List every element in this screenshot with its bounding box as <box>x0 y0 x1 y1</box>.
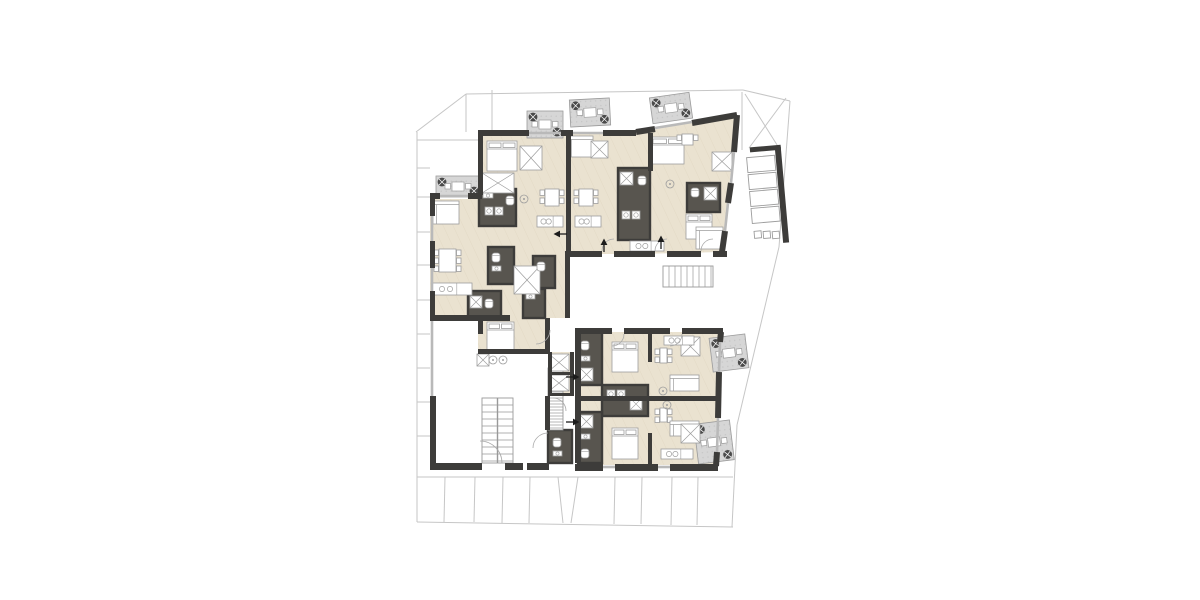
wall <box>648 133 653 171</box>
chair <box>655 409 660 415</box>
furniture-lamp <box>489 356 497 364</box>
storage-stall <box>751 206 780 223</box>
storage-strip <box>746 145 789 246</box>
site-line <box>558 477 563 523</box>
balcony-chair <box>532 122 538 128</box>
furniture-wc <box>691 188 699 197</box>
site-line <box>474 477 475 522</box>
wall <box>575 464 603 471</box>
pillow <box>626 344 636 349</box>
toilet <box>553 438 561 447</box>
wall <box>548 393 574 396</box>
wall <box>670 464 718 471</box>
balcony <box>709 334 749 372</box>
site-line <box>743 90 790 101</box>
table <box>579 189 593 206</box>
wall <box>636 129 655 132</box>
chair <box>655 349 660 355</box>
wall <box>728 183 731 203</box>
chair <box>655 357 660 363</box>
toilet <box>691 188 699 197</box>
toilet <box>581 341 589 350</box>
chair <box>540 190 545 196</box>
toilet <box>638 176 646 185</box>
wall <box>430 199 435 216</box>
chair <box>560 190 565 196</box>
furniture-sink <box>553 451 562 456</box>
balcony-table <box>539 120 551 129</box>
wall <box>614 251 655 257</box>
wall <box>716 452 717 466</box>
balcony-chair <box>701 440 707 446</box>
table <box>545 189 559 206</box>
sofa <box>670 375 699 391</box>
furniture-shower <box>704 187 717 200</box>
wall <box>575 396 721 401</box>
site-line <box>749 98 786 148</box>
toilet <box>581 449 589 458</box>
chair <box>594 190 599 196</box>
wall <box>682 328 723 334</box>
wall <box>527 463 549 470</box>
furniture-sofa <box>433 201 459 224</box>
furniture-sink <box>581 434 590 439</box>
kitchen-counter <box>664 336 694 345</box>
balcony-chair <box>678 103 684 109</box>
balcony-chair <box>553 122 559 128</box>
furniture-sink <box>492 266 501 271</box>
wall <box>565 251 602 257</box>
kitchen-counter <box>661 449 693 459</box>
balcony-chair <box>577 110 583 116</box>
pillow <box>688 216 698 221</box>
furniture-sink <box>581 356 590 361</box>
wall <box>478 130 529 136</box>
site-line <box>417 522 733 527</box>
site-line <box>416 94 466 132</box>
site-line <box>671 477 672 525</box>
furniture-shower <box>477 354 489 366</box>
furniture-bed <box>651 137 684 164</box>
chair <box>668 409 673 415</box>
chair <box>574 190 579 196</box>
storage-stall <box>750 189 779 206</box>
toilet <box>537 262 545 271</box>
pillow <box>626 430 636 435</box>
table <box>682 134 693 145</box>
pillow <box>700 216 710 221</box>
chair <box>540 198 545 204</box>
wall <box>648 433 652 464</box>
chair <box>457 266 462 272</box>
wall <box>615 464 658 471</box>
storage-bin <box>772 231 780 239</box>
wall <box>718 372 719 418</box>
wall <box>624 328 670 334</box>
bathroom-core <box>488 247 514 284</box>
balcony-chair <box>466 184 472 190</box>
furniture-wardrobe <box>514 266 540 294</box>
table <box>660 408 667 422</box>
pillow <box>503 143 515 148</box>
furniture-sofa <box>670 375 699 391</box>
furniture-wc <box>638 176 646 185</box>
pillow <box>502 324 513 329</box>
wall <box>478 320 483 334</box>
chair <box>594 198 599 204</box>
furniture-wardrobe <box>712 152 732 171</box>
furniture-kitchen <box>661 449 693 459</box>
wall <box>720 332 721 342</box>
storage-stall <box>748 172 777 189</box>
site-line <box>697 477 698 525</box>
furniture-shower <box>470 296 482 308</box>
pillow <box>614 344 624 349</box>
furniture-shower <box>580 415 593 428</box>
balcony-chair <box>658 106 664 112</box>
site-line <box>745 94 779 148</box>
staircase <box>663 266 713 287</box>
furniture-lamp <box>499 356 507 364</box>
furniture-shower <box>620 172 633 185</box>
washer <box>622 211 630 219</box>
storage-stall <box>747 155 776 172</box>
washer <box>485 207 493 215</box>
furniture-wc <box>537 262 545 271</box>
site-line <box>732 425 737 527</box>
pillow <box>489 324 500 329</box>
pillow <box>614 430 624 435</box>
wall <box>478 349 550 354</box>
furniture-bed <box>612 342 638 372</box>
furniture-wardrobe <box>482 173 514 193</box>
furniture-kitchen <box>664 336 694 345</box>
wall <box>575 334 581 396</box>
chair <box>668 349 673 355</box>
furniture-bed <box>612 428 638 459</box>
balcony-table <box>452 182 464 191</box>
staircase <box>482 398 513 463</box>
furniture-sofa <box>696 227 723 249</box>
furniture-kitchen <box>537 216 563 227</box>
balcony-chair <box>445 184 451 190</box>
wall <box>548 372 574 375</box>
toilet <box>506 196 514 205</box>
site-line <box>502 477 503 523</box>
wall <box>565 254 570 318</box>
balcony-chair <box>721 437 727 443</box>
pillow <box>653 139 667 144</box>
wall <box>603 130 636 136</box>
chair <box>457 258 462 264</box>
wall <box>575 401 581 463</box>
wall <box>734 115 737 152</box>
wall <box>430 315 510 321</box>
chair <box>457 250 462 256</box>
wall <box>545 318 550 354</box>
chair <box>560 198 565 204</box>
floor-plan-drawing <box>0 0 1200 600</box>
window <box>719 342 720 372</box>
wall <box>575 328 612 334</box>
floor-plan-page <box>0 0 1200 600</box>
balcony-chair <box>597 109 603 115</box>
site-line <box>641 477 642 524</box>
toilet <box>485 299 493 308</box>
table <box>660 348 667 363</box>
kitchen-counter <box>432 283 472 295</box>
furniture-washer <box>622 211 630 219</box>
furniture-kitchen <box>575 216 601 227</box>
furniture-sink <box>483 193 493 198</box>
furniture-sofa <box>568 136 593 157</box>
chair <box>668 357 673 363</box>
balcony <box>569 98 610 127</box>
chair <box>694 135 699 141</box>
wall <box>667 251 701 257</box>
wall <box>722 231 725 252</box>
pillow <box>489 143 501 148</box>
wall <box>648 332 652 362</box>
furniture-kitchen <box>432 283 472 295</box>
wall <box>430 241 435 268</box>
furniture-wardrobe <box>591 141 608 158</box>
storage-bin <box>754 231 762 239</box>
furniture-sink <box>526 294 535 299</box>
furniture-wc <box>553 438 561 447</box>
furniture-shower <box>580 368 593 381</box>
wall <box>505 463 523 470</box>
washer <box>495 207 503 215</box>
storage-bin <box>763 231 771 239</box>
site-line <box>529 477 530 523</box>
furniture-wc <box>506 196 514 205</box>
chair <box>574 198 579 204</box>
balcony-table <box>664 103 677 114</box>
furniture-wc <box>581 341 589 350</box>
furniture-washer <box>485 207 493 215</box>
wall <box>430 463 482 470</box>
chair <box>655 417 660 423</box>
furniture-washer <box>632 211 640 219</box>
furniture-wc <box>485 299 493 308</box>
balcony-table <box>722 348 735 358</box>
furniture-wc <box>492 253 500 262</box>
furniture-table <box>434 249 461 272</box>
furniture-washer <box>495 207 503 215</box>
furniture-bed <box>487 322 514 350</box>
door-swing-arc <box>533 433 548 448</box>
balcony <box>649 92 692 123</box>
site-line <box>444 477 445 522</box>
site-line <box>571 477 578 523</box>
wall <box>430 396 436 463</box>
balcony-chair <box>736 348 742 354</box>
site-line <box>614 477 615 524</box>
wall <box>545 396 550 430</box>
site-line <box>466 90 743 94</box>
table <box>439 249 456 272</box>
chair <box>677 135 682 141</box>
furniture-bed <box>487 141 517 171</box>
balcony-table <box>584 108 596 118</box>
wall <box>430 193 440 199</box>
wall <box>478 133 483 195</box>
wall <box>566 133 571 251</box>
furniture-wc <box>581 449 589 458</box>
furniture-wardrobe <box>681 424 700 443</box>
washer <box>632 211 640 219</box>
toilet <box>492 253 500 262</box>
furniture-wardrobe <box>520 146 542 170</box>
window <box>717 418 718 452</box>
